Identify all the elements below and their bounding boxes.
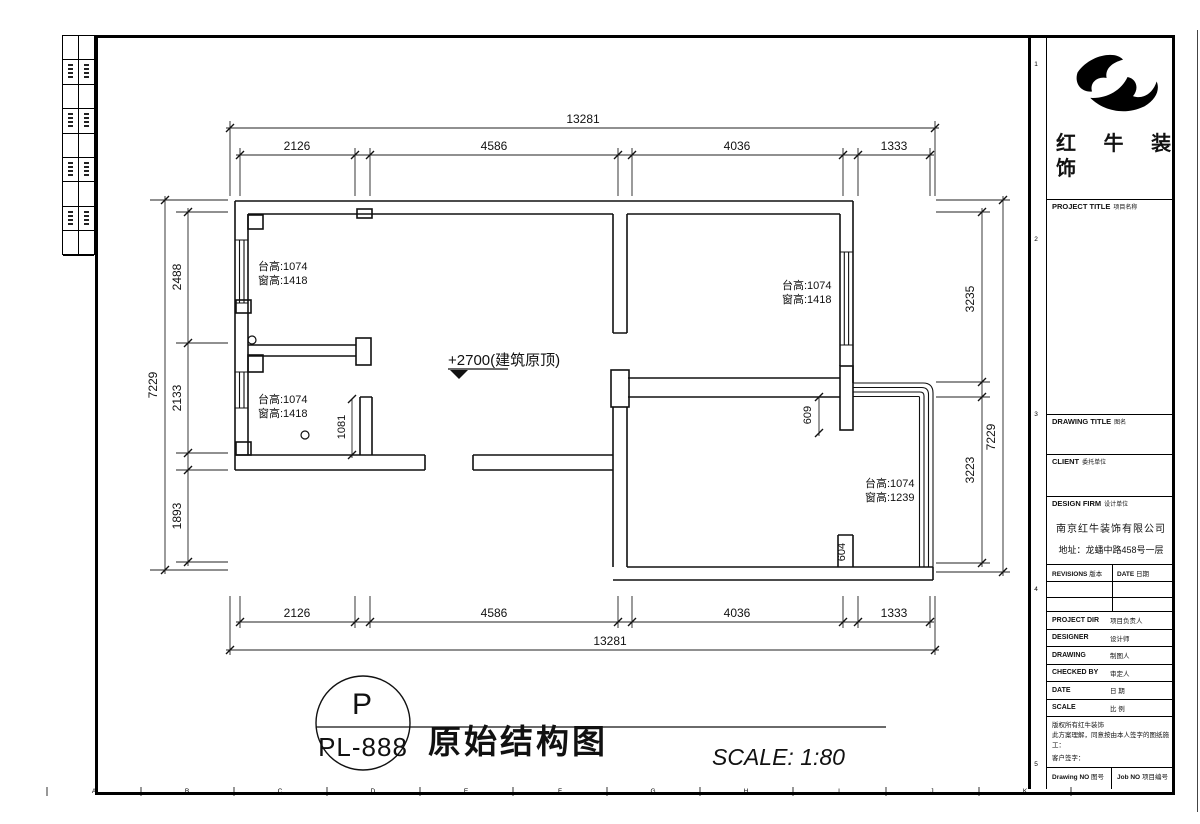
illegible-micro-text bbox=[68, 211, 73, 225]
drawing-title-label-cn: 图名 bbox=[1114, 420, 1126, 426]
fold-strip-cell bbox=[79, 231, 95, 255]
sheet-border bbox=[95, 35, 1175, 795]
fold-strip-cell bbox=[63, 36, 79, 60]
checked-by-label: CHECKED BY bbox=[1047, 669, 1110, 676]
project-dir-row: PROJECT DIR项目负责人 bbox=[1047, 612, 1175, 630]
illegible-micro-text bbox=[68, 64, 73, 78]
drawing-no-label-cn: 图号 bbox=[1091, 774, 1104, 781]
fold-strip-cell bbox=[63, 231, 79, 255]
copyright-line3: 客户签字： bbox=[1052, 754, 1171, 764]
fold-strip-cell bbox=[63, 182, 79, 206]
brand-name-line2: 饰 bbox=[1047, 157, 1175, 182]
sheet-outer-edge bbox=[1197, 30, 1198, 812]
date-row: DATE日 期 bbox=[1047, 682, 1175, 700]
fold-strip-cell bbox=[79, 158, 95, 182]
revisions-table: REVISIONS 版本 DATE 日期 bbox=[1047, 565, 1175, 612]
fold-strip-cell bbox=[63, 207, 79, 231]
project-dir-label-cn: 项目负责人 bbox=[1110, 615, 1143, 625]
title-block: 红 牛 装 饰 PROJECT TITLE项目名称 DRAWING TITLE图… bbox=[1028, 35, 1175, 789]
fold-strip-cell bbox=[79, 109, 95, 133]
revisions-divider bbox=[1112, 565, 1113, 611]
date-label-cn: 日 期 bbox=[1110, 685, 1125, 695]
client-section: CLIENT委托单位 bbox=[1047, 455, 1175, 497]
fold-strip-cell bbox=[63, 60, 79, 84]
fold-strip-cell bbox=[79, 207, 95, 231]
date-col-label: DATE bbox=[1117, 571, 1134, 578]
revisions-label: REVISIONS bbox=[1052, 571, 1087, 578]
revision-row bbox=[1047, 582, 1175, 598]
designer-label-cn: 设计师 bbox=[1110, 633, 1130, 643]
illegible-micro-text bbox=[84, 162, 89, 176]
checked-by-row: CHECKED BY审定人 bbox=[1047, 665, 1175, 683]
illegible-micro-text bbox=[84, 113, 89, 127]
designer-row: DESIGNER设计师 bbox=[1047, 630, 1175, 648]
illegible-micro-text bbox=[68, 113, 73, 127]
fold-strip-cell bbox=[79, 182, 95, 206]
design-firm-section: DESIGN FIRM设计单位 南京红牛装饰有限公司 地址：龙蟠中路458号一层 bbox=[1047, 497, 1175, 565]
scale-label: SCALE bbox=[1047, 704, 1110, 711]
illegible-micro-text bbox=[84, 64, 89, 78]
job-no-label: Job NO bbox=[1117, 774, 1140, 781]
drawing-sheet: 红 牛 装 饰 PROJECT TITLE项目名称 DRAWING TITLE图… bbox=[0, 0, 1200, 824]
job-no-label-cn: 项目编号 bbox=[1142, 774, 1168, 781]
scale-label-cn: 比 例 bbox=[1110, 703, 1125, 713]
copyright-line1: 版权所有红牛装饰 bbox=[1052, 721, 1171, 731]
firm-name: 南京红牛装饰有限公司 bbox=[1047, 520, 1175, 535]
client-label-cn: 委托单位 bbox=[1082, 460, 1106, 466]
date-col-label-cn: 日期 bbox=[1136, 571, 1149, 578]
revision-row bbox=[1047, 598, 1175, 612]
project-title-label: PROJECT TITLE bbox=[1052, 202, 1110, 211]
project-title-label-cn: 项目名称 bbox=[1113, 205, 1137, 211]
copyright-section: 版权所有红牛装饰 此方案理解，同意按由本人签字的图纸施工： 客户签字： bbox=[1047, 717, 1175, 768]
project-title-section: PROJECT TITLE项目名称 bbox=[1047, 200, 1175, 415]
fold-strip-cell bbox=[63, 158, 79, 182]
fold-strip-cell bbox=[79, 60, 95, 84]
project-dir-label: PROJECT DIR bbox=[1047, 617, 1110, 624]
client-label: CLIENT bbox=[1052, 457, 1079, 466]
design-firm-label-cn: 设计单位 bbox=[1104, 502, 1128, 508]
design-firm-label: DESIGN FIRM bbox=[1052, 499, 1101, 508]
checked-by-label-cn: 审定人 bbox=[1110, 668, 1130, 678]
revisions-label-cn: 版本 bbox=[1089, 571, 1102, 578]
fold-strip-cell bbox=[63, 85, 79, 109]
drawing-no-label: Drawing NO bbox=[1052, 774, 1089, 781]
fold-strip-cell bbox=[79, 85, 95, 109]
illegible-micro-text bbox=[68, 162, 73, 176]
title-block-logo-section: 红 牛 装 饰 bbox=[1047, 35, 1175, 200]
drawing-title-label: DRAWING TITLE bbox=[1052, 417, 1111, 426]
drawing-label-cn: 制图人 bbox=[1110, 650, 1130, 660]
company-logo-icon bbox=[1063, 47, 1163, 127]
copyright-line2: 此方案理解，同意按由本人签字的图纸施工： bbox=[1052, 731, 1171, 751]
fold-strip-cell bbox=[79, 36, 95, 60]
scale-row: SCALE比 例 bbox=[1047, 700, 1175, 718]
firm-address: 地址：龙蟠中路458号一层 bbox=[1047, 543, 1175, 556]
drawing-title-section: DRAWING TITLE图名 bbox=[1047, 415, 1175, 455]
designer-label: DESIGNER bbox=[1047, 634, 1110, 641]
brand-name-line1: 红 牛 装 bbox=[1047, 132, 1175, 157]
fold-strip bbox=[62, 35, 95, 255]
drawing-number-section: Drawing NO 图号 Job NO 项目编号 bbox=[1047, 768, 1175, 789]
drawing-row: DRAWING制图人 bbox=[1047, 647, 1175, 665]
date-label: DATE bbox=[1047, 687, 1110, 694]
fold-strip-cell bbox=[63, 134, 79, 158]
fold-strip-cell bbox=[63, 109, 79, 133]
illegible-micro-text bbox=[84, 211, 89, 225]
fold-strip-cell bbox=[79, 134, 95, 158]
drawing-label: DRAWING bbox=[1047, 652, 1110, 659]
